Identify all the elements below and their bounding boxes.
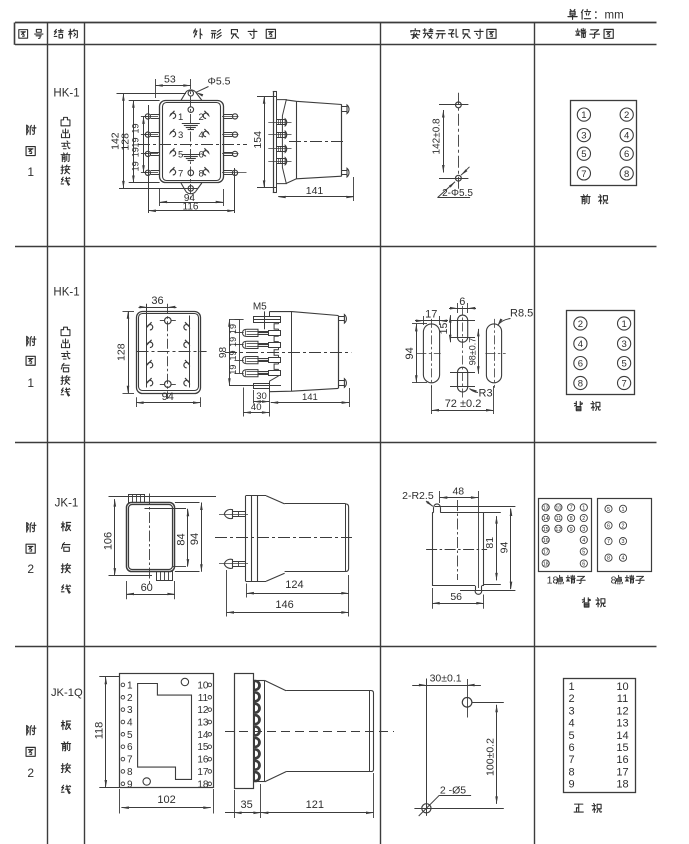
svg-text:8: 8 [199, 168, 204, 179]
svg-text:15: 15 [543, 527, 549, 533]
svg-text:5: 5 [581, 149, 586, 160]
svg-text:3: 3 [581, 131, 586, 142]
svg-text:141: 141 [302, 392, 318, 403]
svg-text:19: 19 [130, 137, 140, 147]
svg-text:4: 4 [199, 130, 204, 141]
svg-text:7: 7 [621, 378, 626, 389]
svg-text:36: 36 [151, 295, 163, 307]
svg-text:8: 8 [127, 767, 133, 778]
svg-text:14: 14 [197, 730, 209, 741]
svg-text:6: 6 [127, 742, 133, 753]
svg-text:118: 118 [93, 722, 105, 740]
svg-text:18: 18 [616, 779, 628, 791]
svg-text:2: 2 [27, 562, 34, 576]
svg-text:2-R2.5: 2-R2.5 [402, 490, 434, 502]
svg-text:3: 3 [178, 130, 183, 141]
svg-text:M5: M5 [253, 301, 267, 312]
svg-text:2: 2 [624, 110, 629, 121]
svg-text:4: 4 [568, 718, 574, 730]
svg-text:18: 18 [197, 779, 209, 790]
svg-text:9: 9 [127, 779, 133, 790]
svg-text:1: 1 [568, 681, 574, 693]
svg-text:1: 1 [27, 376, 34, 390]
svg-text:17: 17 [197, 767, 209, 778]
svg-text:14: 14 [543, 516, 549, 522]
svg-text:7: 7 [178, 168, 183, 179]
svg-text:18: 18 [543, 562, 549, 568]
svg-text:40: 40 [251, 402, 262, 413]
svg-text:HK-1: HK-1 [53, 287, 79, 299]
svg-text:15: 15 [197, 742, 209, 753]
svg-text:2: 2 [568, 693, 574, 705]
svg-text:11: 11 [198, 693, 209, 704]
svg-text:1: 1 [582, 505, 585, 511]
svg-text:5: 5 [607, 507, 610, 513]
svg-text:17: 17 [616, 766, 628, 778]
svg-text:30±0.1: 30±0.1 [430, 672, 462, 684]
svg-text:3: 3 [127, 705, 133, 716]
svg-text:7: 7 [568, 754, 574, 766]
svg-text:：mm: ：mm [593, 10, 624, 22]
svg-text:1: 1 [581, 110, 586, 121]
svg-text:12: 12 [616, 705, 628, 717]
svg-text:HK-1: HK-1 [53, 88, 79, 100]
svg-text:6: 6 [459, 296, 465, 308]
svg-text:JK-1Q: JK-1Q [51, 687, 83, 699]
svg-text:19: 19 [130, 147, 140, 157]
svg-text:128: 128 [116, 343, 128, 361]
svg-text:2: 2 [582, 516, 585, 522]
svg-text:1: 1 [178, 112, 183, 123]
svg-text:14: 14 [616, 730, 628, 742]
svg-text:56: 56 [450, 591, 462, 603]
svg-text:17: 17 [425, 308, 437, 320]
svg-text:4: 4 [622, 556, 625, 562]
svg-text:106: 106 [102, 532, 114, 550]
svg-text:1: 1 [622, 507, 625, 513]
svg-text:5: 5 [621, 359, 626, 370]
svg-text:R8.5: R8.5 [510, 307, 533, 319]
svg-text:9: 9 [568, 779, 574, 791]
svg-text:154: 154 [252, 131, 264, 149]
svg-text:100±0.2: 100±0.2 [484, 738, 496, 776]
svg-text:6: 6 [568, 742, 574, 754]
svg-text:17: 17 [543, 550, 549, 556]
svg-text:10: 10 [555, 505, 561, 511]
svg-text:2: 2 [27, 766, 34, 780]
svg-text:8: 8 [607, 556, 610, 562]
svg-text:1: 1 [127, 680, 133, 691]
svg-text:11: 11 [556, 516, 562, 522]
svg-text:1: 1 [621, 319, 626, 330]
svg-text:2-Φ5.5: 2-Φ5.5 [442, 188, 473, 199]
svg-text:9: 9 [570, 527, 573, 533]
svg-text:8: 8 [568, 766, 574, 778]
svg-text:6: 6 [578, 359, 583, 370]
svg-text:2: 2 [199, 112, 204, 123]
svg-text:72 ±0.2: 72 ±0.2 [445, 398, 482, 410]
svg-text:94: 94 [404, 347, 416, 359]
svg-text:4: 4 [127, 718, 133, 729]
svg-text:15: 15 [616, 742, 628, 754]
svg-text:12: 12 [197, 705, 209, 716]
svg-text:11: 11 [617, 693, 628, 705]
svg-text:18: 18 [547, 574, 559, 586]
svg-text:19: 19 [228, 324, 238, 334]
svg-text:48: 48 [452, 485, 464, 497]
svg-text:6: 6 [607, 523, 610, 529]
svg-text:7: 7 [607, 539, 610, 545]
svg-text:8: 8 [570, 516, 573, 522]
svg-text:19: 19 [228, 350, 238, 360]
svg-text:146: 146 [275, 599, 293, 611]
svg-text:12: 12 [555, 527, 561, 533]
svg-text:2: 2 [578, 319, 583, 330]
svg-text:53: 53 [164, 73, 176, 85]
svg-text:16: 16 [543, 538, 549, 544]
svg-text:13: 13 [197, 718, 209, 729]
svg-text:13: 13 [543, 505, 549, 511]
svg-text:4: 4 [578, 339, 583, 350]
svg-text:8: 8 [624, 169, 629, 180]
svg-text:30: 30 [256, 391, 267, 402]
svg-text:124: 124 [285, 579, 303, 591]
svg-text:4: 4 [624, 131, 629, 142]
svg-text:3: 3 [568, 705, 574, 717]
svg-text:2: 2 [622, 523, 625, 529]
svg-text:JK-1: JK-1 [55, 498, 79, 510]
svg-text:13: 13 [616, 718, 628, 730]
svg-text:98±0.7: 98±0.7 [467, 338, 477, 365]
svg-text:6: 6 [582, 562, 585, 568]
svg-text:19: 19 [228, 365, 238, 375]
svg-text:10: 10 [616, 681, 628, 693]
svg-text:8: 8 [578, 378, 583, 389]
svg-text:7: 7 [127, 755, 133, 766]
svg-text:94: 94 [498, 542, 510, 554]
svg-text:121: 121 [306, 799, 324, 811]
svg-text:7: 7 [581, 169, 586, 180]
svg-text:84: 84 [176, 533, 188, 545]
svg-text:35: 35 [240, 799, 252, 811]
svg-text:1: 1 [27, 165, 34, 179]
svg-text:5: 5 [127, 730, 133, 741]
svg-text:4: 4 [582, 538, 585, 544]
svg-text:102: 102 [157, 794, 175, 806]
svg-text:8: 8 [611, 574, 617, 586]
svg-text:16: 16 [197, 755, 209, 766]
svg-text:3: 3 [621, 339, 626, 350]
svg-text:7: 7 [570, 505, 573, 511]
svg-text:142±0.8: 142±0.8 [432, 118, 443, 155]
svg-text:2 -Ø5: 2 -Ø5 [440, 784, 466, 796]
svg-text:2: 2 [127, 693, 133, 704]
svg-text:16: 16 [616, 754, 628, 766]
svg-text:5: 5 [582, 550, 585, 556]
svg-text:19: 19 [130, 161, 140, 171]
svg-text:60: 60 [141, 582, 153, 594]
svg-text:5: 5 [568, 730, 574, 742]
svg-text:94: 94 [189, 533, 201, 545]
svg-text:116: 116 [183, 202, 199, 213]
svg-text:3: 3 [582, 527, 585, 533]
svg-text:6: 6 [624, 149, 629, 160]
svg-text:94: 94 [162, 391, 174, 403]
svg-text:141: 141 [306, 185, 324, 197]
svg-text:19: 19 [130, 123, 140, 133]
svg-text:10: 10 [197, 680, 209, 691]
svg-text:19: 19 [228, 337, 238, 347]
svg-text:81: 81 [484, 537, 496, 549]
svg-text:15: 15 [438, 323, 450, 335]
svg-text:3: 3 [622, 539, 625, 545]
svg-text:Φ5.5: Φ5.5 [208, 76, 231, 88]
